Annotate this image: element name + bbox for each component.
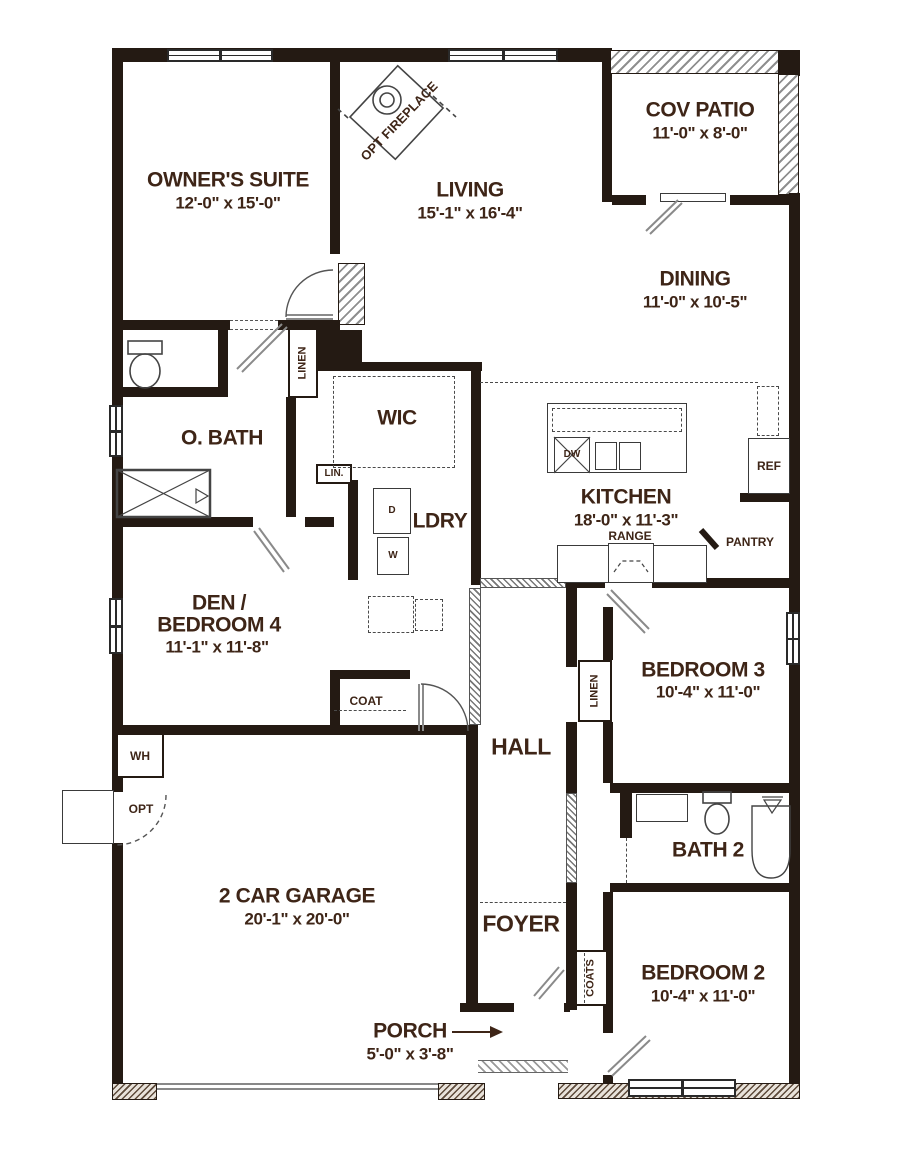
room-label-owners-suite: OWNER'S SUITE [147,170,309,191]
wall-patio-right-hatched [778,74,799,195]
room-dims-dining: 11'-0" x 10'-5" [643,294,747,311]
shower-x [117,470,210,517]
wall-wic-north [316,362,482,371]
wall-pantry-north [740,493,790,502]
label-range: RANGE [608,530,651,542]
window-living [448,49,558,62]
sink-left [595,442,617,470]
room-label-bath2: BATH 2 [672,840,744,861]
patio-door-slab [660,193,726,202]
toilet-bowl-bath2 [705,804,729,834]
garage-door [157,1083,438,1090]
coat-shelf-line [334,710,406,713]
label-pantry: PANTRY [726,536,774,548]
bedroom2-door-leaf [608,1036,650,1076]
opt-furniture-b [415,599,443,631]
room-label-wic: WIC [377,408,417,429]
room-dims-kitchen: 18'-0" x 11'-3" [574,512,678,529]
opening-owners-obath [230,320,278,330]
room-label-living: LIVING [436,180,504,201]
toilet-bowl-obath [130,354,160,388]
label-opt-fireplace: OPT FIREPLACE [358,79,440,163]
wall-exterior-left [112,48,123,1096]
wall-hall-west-archway [469,588,481,725]
porch-floor-hatched [478,1060,568,1073]
fireplace-circle-outer [373,86,401,114]
foyer-door-leaf [534,967,564,999]
bath2-vanity [636,794,688,822]
fireplace-circle-inner [380,93,394,107]
owners-door-leaf [286,315,333,319]
obath-door-leaf [237,324,287,372]
room-dims-den: 11'-1" x 11'-8" [165,639,268,656]
bedroom3-door-leaf [607,590,649,633]
den-door-leaf [254,528,289,572]
coat-door-arc [421,684,468,731]
opening-den [253,517,305,527]
wall-coat-west [330,670,340,733]
wall-garage-east [466,725,478,1012]
bath2-west-dash [626,838,629,883]
owners-door-arc [286,270,333,317]
room-dims-cov-patio: 11'-0" x 8'-0" [652,125,747,142]
label-coat: COAT [349,695,382,707]
wall-bath2-north [610,783,800,793]
wall-obath-east [286,397,296,517]
label-water-heater: WH [130,750,150,762]
opt-door-exterior-box [62,790,114,844]
bath2-tub [752,806,790,878]
shower-drain-triangle [196,489,208,503]
opt-furniture-a [368,596,414,633]
room-label-porch: PORCH [373,1021,447,1042]
room-label-bedroom2: BEDROOM 2 [641,963,765,984]
window-owners-suite [167,49,273,62]
kitchen-dining-boundary [480,382,758,385]
label-linen-obath: LINEN [298,347,309,380]
window-bedroom2 [628,1079,736,1097]
label-lin: LIN. [325,469,344,479]
room-label-bedroom3: BEDROOM 3 [641,660,765,681]
room-dims-living: 15'-1" x 16'-4" [417,205,522,222]
label-opt-door: OPT [129,803,154,815]
room-label-garage: 2 CAR GARAGE [219,886,375,907]
room-dims-bedroom2: 10'-4" x 11'-0" [651,988,755,1005]
wall-bedroom3-west-b [603,722,613,783]
label-dw: DW [564,450,581,460]
bath2-sink-triangle [762,797,783,813]
cabinet-dash-ref [757,386,779,436]
room-dims-garage: 20'-1" x 20'-0" [244,911,349,928]
room-dims-owners-suite: 12'-0" x 15'-0" [175,195,280,212]
sink-right [619,442,641,470]
wall-bedroom3-west-a [603,607,613,660]
wall-hall-east-b [566,722,577,793]
label-washer: W [388,551,397,561]
porch-arrow [452,1026,503,1038]
room-label-kitchen: KITCHEN [581,487,672,508]
wall-bath2-south [610,883,800,892]
wall-garage-north [112,725,468,735]
range-box [608,543,654,583]
label-coats: COATS [586,959,597,997]
room-label-hall: HALL [491,736,551,759]
symbols-overlay [0,0,900,1151]
wall-owners-door-hatched [338,263,365,325]
room-dims-bedroom3: 10'-4" x 11'-0" [656,684,760,701]
toilet-tank-obath [128,341,162,354]
wall-hall-east-a [566,588,577,667]
opening-kitchen-hall [480,578,566,588]
room-label-dining: DINING [659,269,730,290]
island-bar-dash [552,408,682,432]
room-label-cov-patio: COV PATIO [646,100,755,121]
room-label-ldry: LDRY [413,511,468,532]
opening-bedroom2-door [603,1033,613,1075]
foyer-ceiling-line [480,902,566,905]
toilet-tank-bath2 [703,792,731,803]
wall-toilet-compartment-h [112,387,228,397]
footing-garage-left [112,1083,157,1100]
window-den [109,598,123,654]
wall-coat-north [330,670,410,679]
room-label-obath: O. BATH [181,428,263,449]
wall-patio-corner [778,50,800,76]
wall-ldry-west [348,480,358,580]
wall-owners-east [330,62,340,254]
room-label-den-line1: DEN / [192,593,246,614]
window-bedroom3 [786,612,800,665]
room-label-foyer: FOYER [482,913,559,936]
coat-door-leaf [419,684,423,731]
label-dryer: D [388,506,395,516]
shower-outline [117,470,210,517]
room-dims-porch: 5'-0" x 3'-8" [366,1046,453,1063]
window-obath [109,405,123,457]
wall-hall-west-upper [471,370,481,585]
wall-bath2-west [620,793,632,838]
label-linen-hall: LINEN [590,675,601,708]
opening-foyer-door [514,1003,564,1012]
wall-hall-east-archway [566,793,577,883]
footing-garage-right [438,1083,485,1100]
floor-plan: OWNER'S SUITE 12'-0" x 15'-0" LIVING 15'… [0,0,900,1151]
room-label-den-line2: BEDROOM 4 [157,615,281,636]
label-ref: REF [757,460,781,472]
patio-door-leaf [646,200,682,234]
wall-patio-top-hatched [610,50,798,74]
